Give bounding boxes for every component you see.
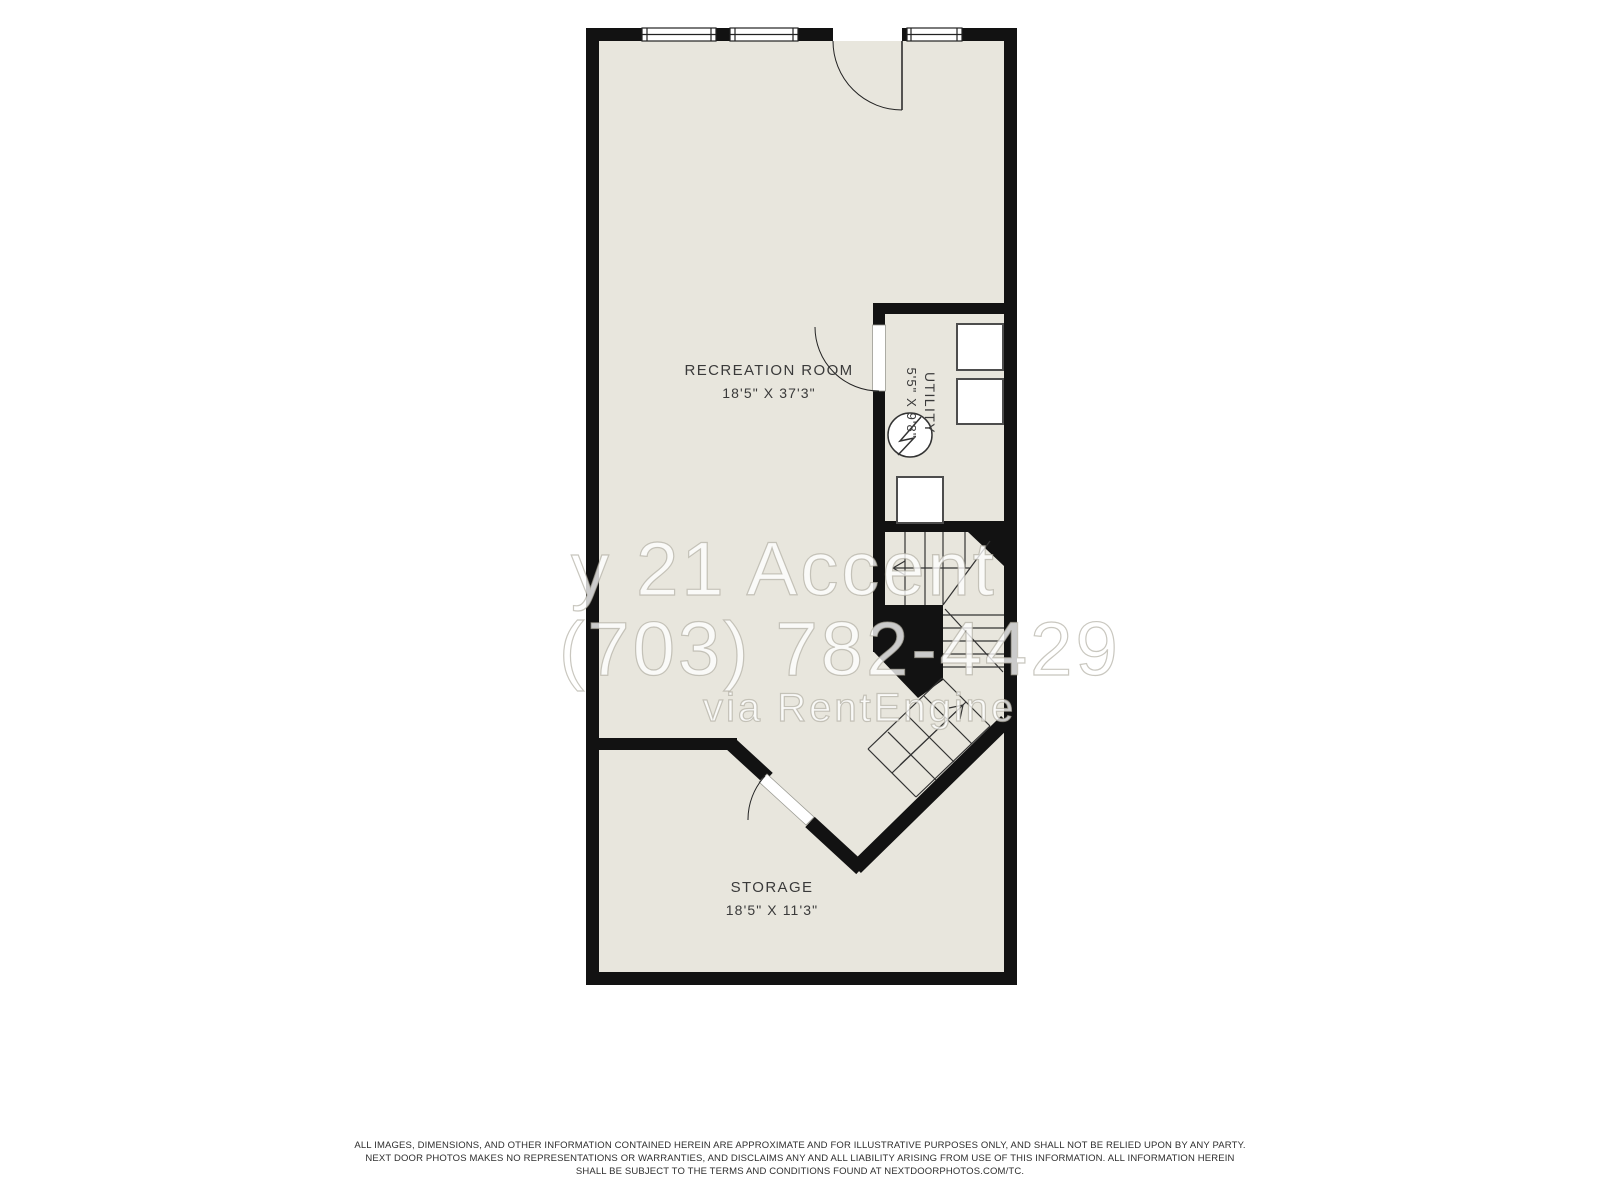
recreation-room-label: RECREATION ROOM 18'5" X 37'3" bbox=[649, 362, 889, 401]
watermark-phone: (703) 782-4429 bbox=[559, 606, 1121, 693]
storage-room-label: STORAGE 18'5" X 11'3" bbox=[672, 879, 872, 918]
disclaimer-line: ALL IMAGES, DIMENSIONS, AND OTHER INFORM… bbox=[0, 1140, 1600, 1153]
utility-room-label: UTILITY 5'5" X 9'8" bbox=[904, 323, 938, 483]
storage-wall bbox=[599, 738, 737, 750]
dryer bbox=[957, 379, 1003, 424]
room-dimensions: 18'5" X 37'3" bbox=[649, 385, 889, 401]
disclaimer-line: SHALL BE SUBJECT TO THE TERMS AND CONDIT… bbox=[0, 1166, 1600, 1179]
furnace bbox=[897, 477, 943, 523]
room-name: UTILITY bbox=[922, 323, 938, 483]
disclaimer: ALL IMAGES, DIMENSIONS, AND OTHER INFORM… bbox=[0, 1140, 1600, 1178]
room-name: RECREATION ROOM bbox=[649, 362, 889, 379]
watermark-source: via RentEngine bbox=[703, 686, 1016, 731]
disclaimer-line: NEXT DOOR PHOTOS MAKES NO REPRESENTATION… bbox=[0, 1153, 1600, 1166]
window bbox=[730, 28, 798, 41]
room-name: STORAGE bbox=[672, 879, 872, 896]
floor-plan-page: y 21 Accent (703) 782-4429 via RentEngin… bbox=[0, 0, 1600, 1200]
watermark-brand: y 21 Accent bbox=[571, 526, 997, 613]
room-dimensions: 5'5" X 9'8" bbox=[904, 323, 919, 483]
washer bbox=[957, 324, 1003, 370]
window bbox=[907, 28, 962, 41]
room-dimensions: 18'5" X 11'3" bbox=[672, 902, 872, 918]
window bbox=[642, 28, 716, 41]
